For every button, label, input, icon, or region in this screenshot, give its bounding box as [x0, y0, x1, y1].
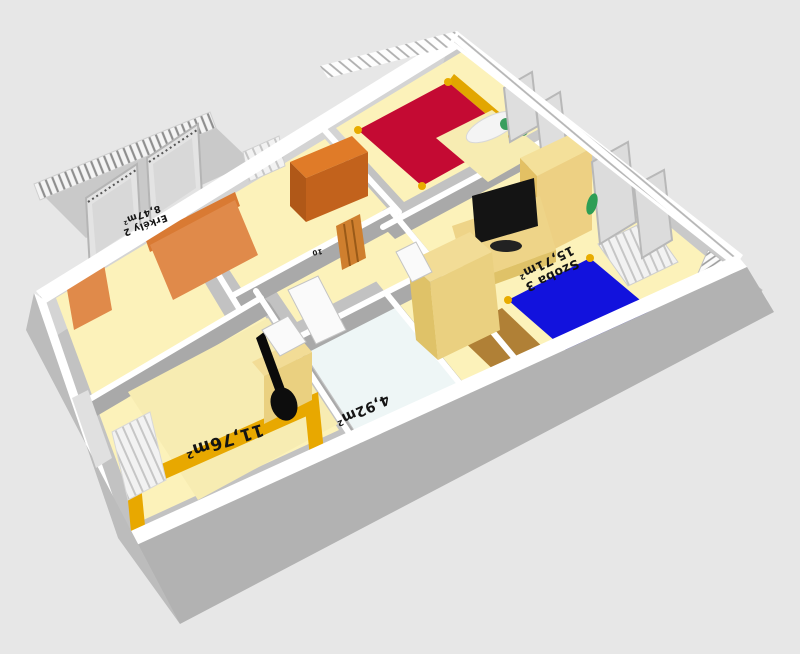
tv-stand	[490, 240, 522, 252]
bed-post	[418, 182, 426, 190]
bed-post	[504, 296, 512, 304]
bed-post	[586, 254, 594, 262]
bed-post	[354, 126, 362, 134]
bed-post	[444, 78, 452, 86]
3d-floorplan-view[interactable]: Erkély 2 8,47m² 11,76m² 4,92m² Szoba 3 1…	[0, 0, 800, 654]
floorplan-render	[0, 0, 800, 654]
